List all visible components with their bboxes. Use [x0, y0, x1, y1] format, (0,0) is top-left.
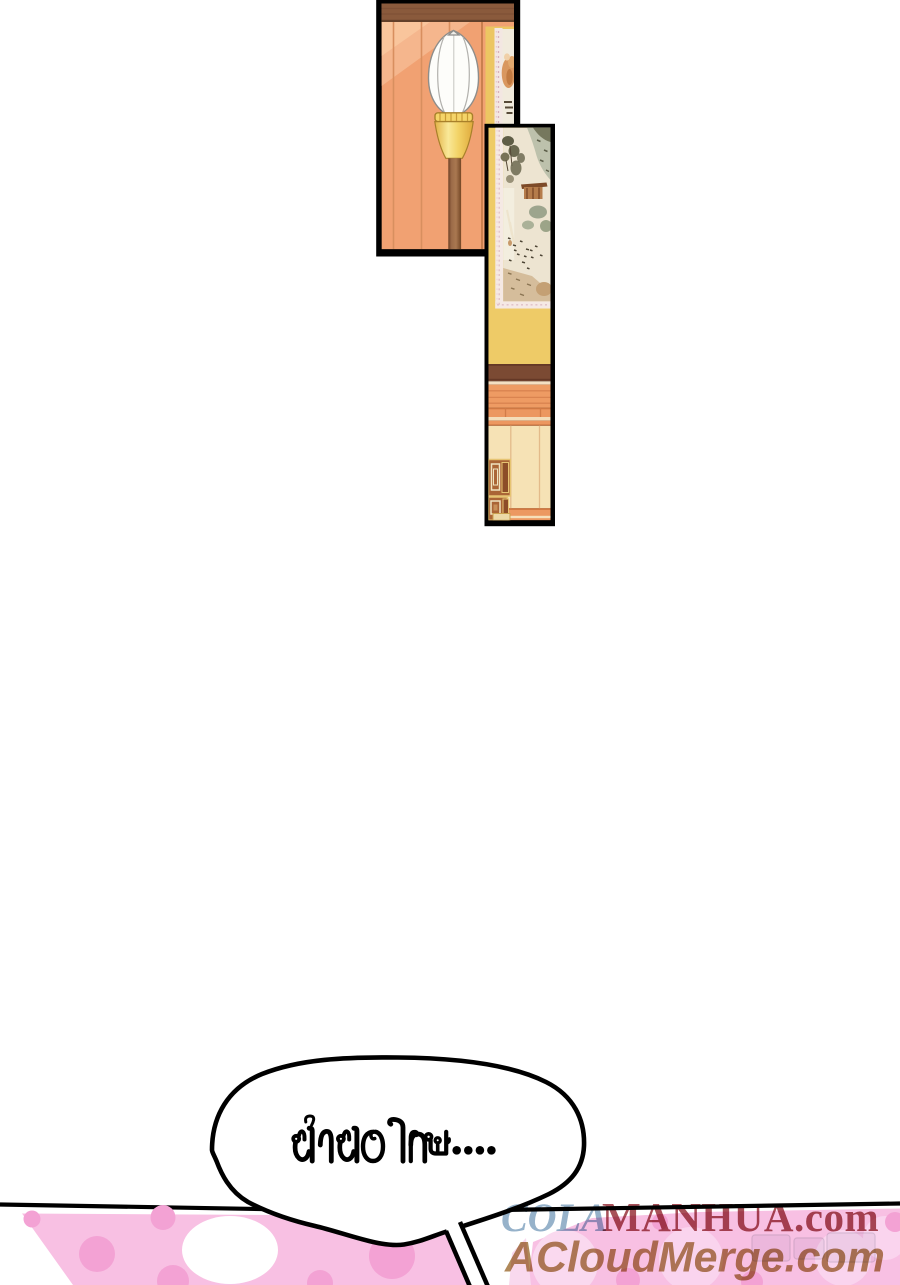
svg-text:ACloudMerge.com: ACloudMerge.com — [504, 1234, 885, 1282]
